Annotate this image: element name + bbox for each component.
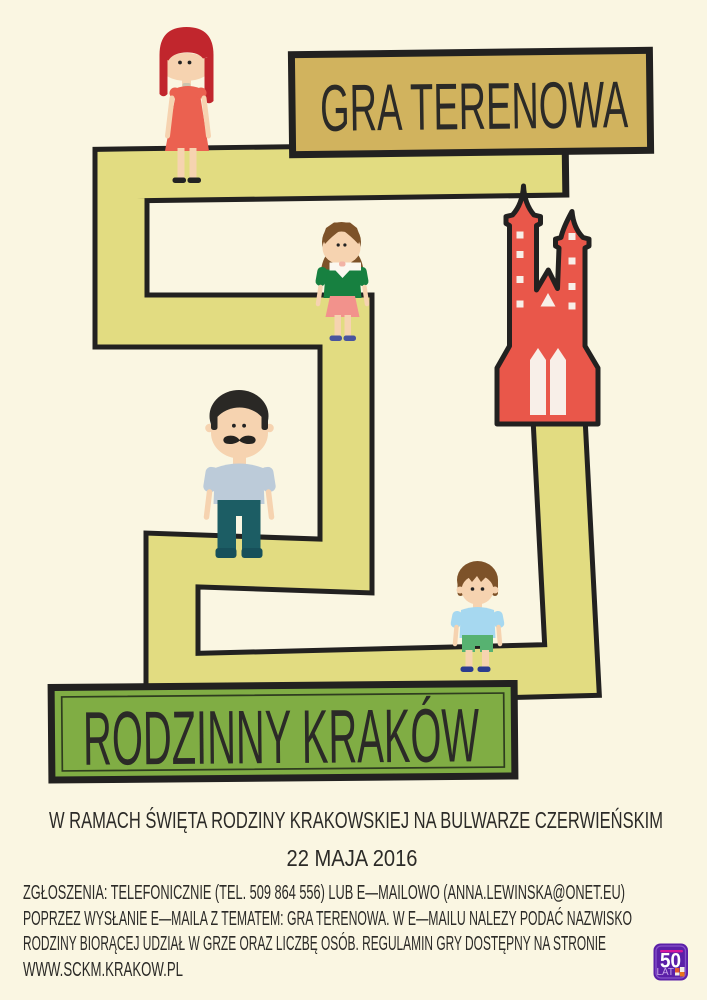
svg-text:W RAMACH ŚWIĘTA RODZINY KRAKOW: W RAMACH ŚWIĘTA RODZINY KRAKOWSKIEJ NA B… <box>49 806 663 833</box>
svg-text:GRA TERENOWA: GRA TERENOWA <box>320 67 629 145</box>
svg-text:LAT: LAT <box>657 967 675 978</box>
svg-text:WWW.SCKM.KRAKOW.PL: WWW.SCKM.KRAKOW.PL <box>23 959 183 981</box>
svg-text:ZGŁOSZENIA: TELEFONICZNIE (TEL: ZGŁOSZENIA: TELEFONICZNIE (TEL. 509 864 … <box>23 882 625 904</box>
svg-text:RODZINNY KRAKÓW: RODZINNY KRAKÓW <box>83 693 480 781</box>
svg-text:22 MAJA 2016: 22 MAJA 2016 <box>287 845 418 871</box>
svg-text:POPRZEZ WYSŁANIE E—MAILA Z TEM: POPRZEZ WYSŁANIE E—MAILA Z TEMATEM: GRA … <box>23 907 632 930</box>
svg-text:RODZINY BIORĄCEJ UDZIAŁ W GRZE: RODZINY BIORĄCEJ UDZIAŁ W GRZE ORAZ LICZ… <box>23 932 606 955</box>
